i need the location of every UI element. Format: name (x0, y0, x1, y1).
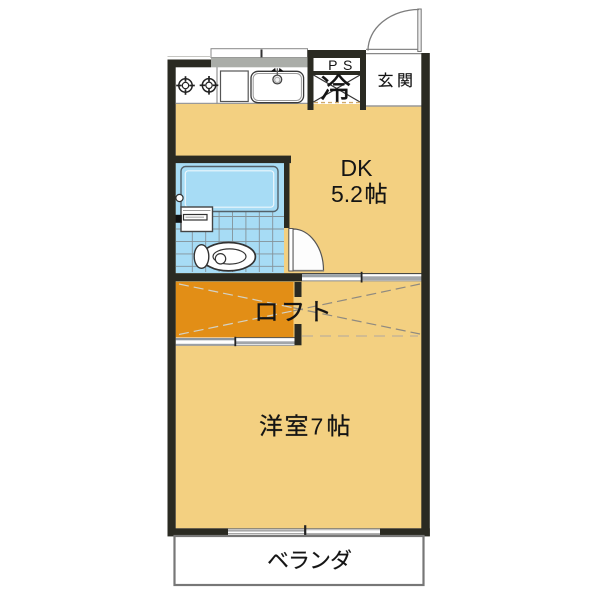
svg-text:5.2: 5.2 (331, 181, 363, 207)
svg-text:7: 7 (311, 414, 324, 440)
svg-text:DK: DK (341, 155, 374, 181)
svg-text:PS: PS (328, 57, 358, 73)
